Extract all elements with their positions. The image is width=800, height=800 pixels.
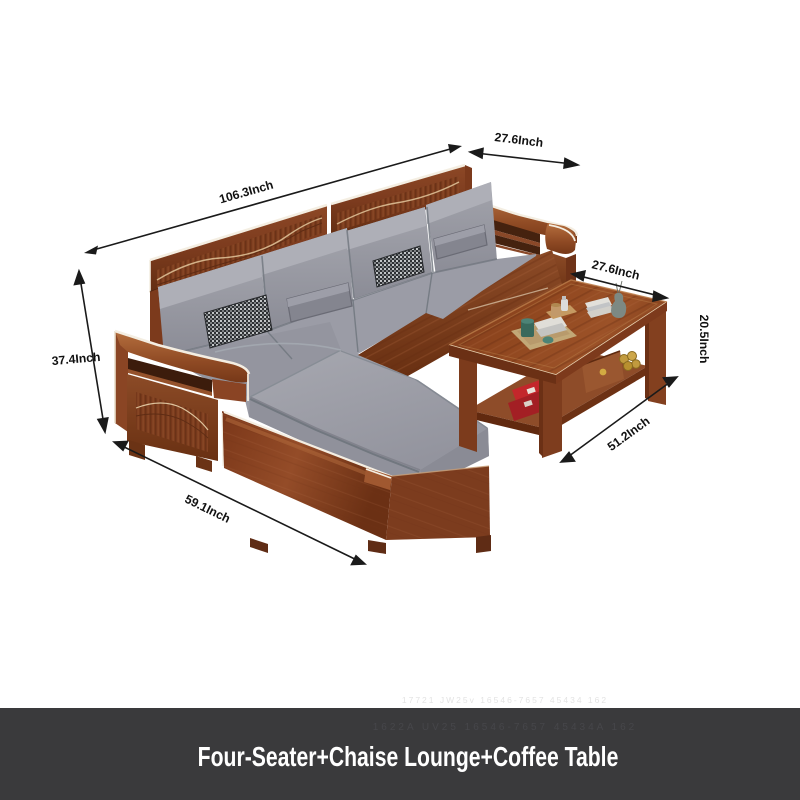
- svg-text:20.5Inch: 20.5Inch: [697, 315, 711, 364]
- svg-text:Four-Seater+Chaise Lounge+Coff: Four-Seater+Chaise Lounge+Coffee Table: [198, 742, 619, 772]
- svg-text:17721 JW25v 16546-7657 45434 1: 17721 JW25v 16546-7657 45434 162: [402, 695, 608, 705]
- svg-text:1622A UV25 16546-7657 45434A 1: 1622A UV25 16546-7657 45434A 162: [373, 722, 638, 733]
